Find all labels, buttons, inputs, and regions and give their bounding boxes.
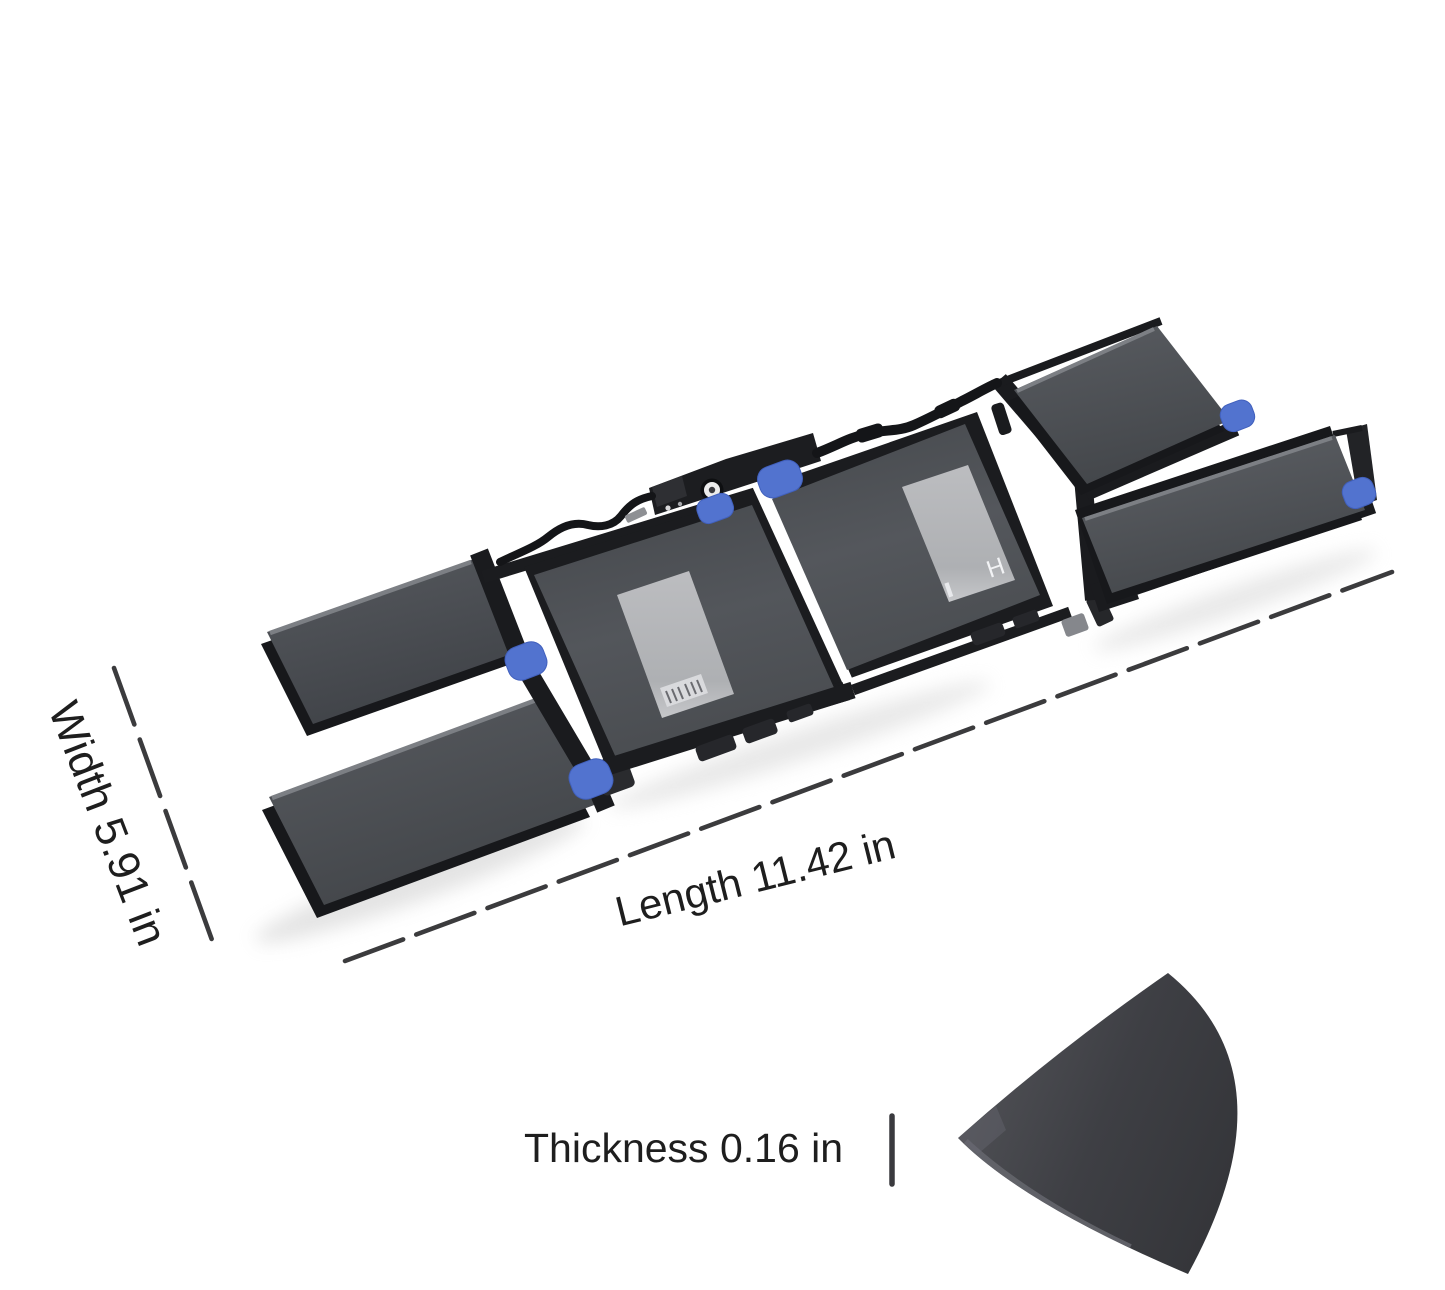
svg-text:Thickness 0.16 in: Thickness 0.16 in (524, 1125, 843, 1171)
